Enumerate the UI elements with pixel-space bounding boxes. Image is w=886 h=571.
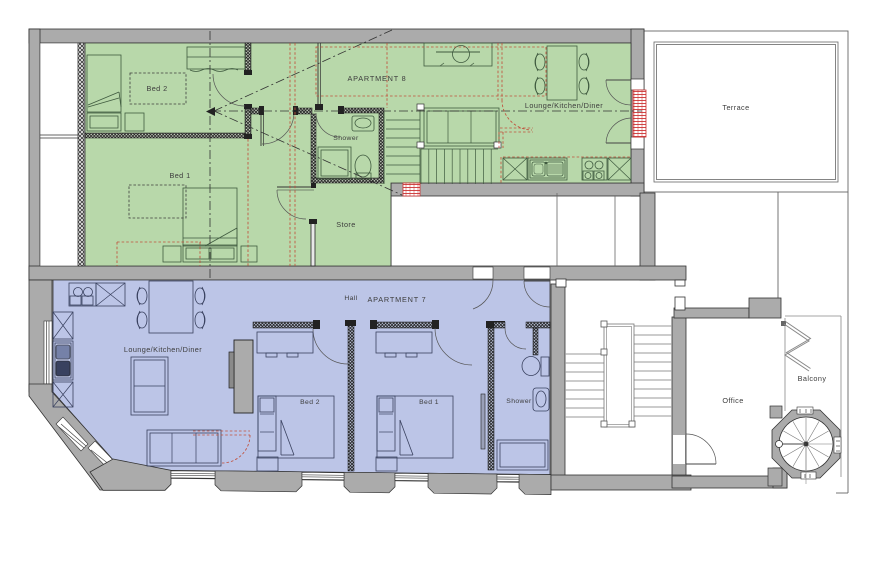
svg-text:Terrace: Terrace (722, 103, 749, 112)
svg-text:Lounge/Kitchen/Diner: Lounge/Kitchen/Diner (124, 345, 202, 354)
svg-text:Hall: Hall (344, 295, 357, 302)
svg-text:Bed 2: Bed 2 (146, 84, 167, 93)
svg-text:Shower: Shower (333, 135, 359, 142)
svg-text:Bed 1: Bed 1 (169, 171, 190, 180)
svg-text:Bed 2: Bed 2 (300, 399, 320, 406)
svg-text:Lounge/Kitchen/Diner: Lounge/Kitchen/Diner (525, 101, 603, 110)
svg-text:Store: Store (336, 220, 355, 229)
svg-text:Office: Office (722, 396, 743, 405)
svg-text:Shower: Shower (506, 398, 532, 405)
svg-text:Bed 1: Bed 1 (419, 399, 439, 406)
svg-text:APARTMENT 7: APARTMENT 7 (367, 295, 426, 304)
svg-text:Balcony: Balcony (798, 374, 827, 383)
svg-text:APARTMENT 8: APARTMENT 8 (347, 74, 406, 83)
